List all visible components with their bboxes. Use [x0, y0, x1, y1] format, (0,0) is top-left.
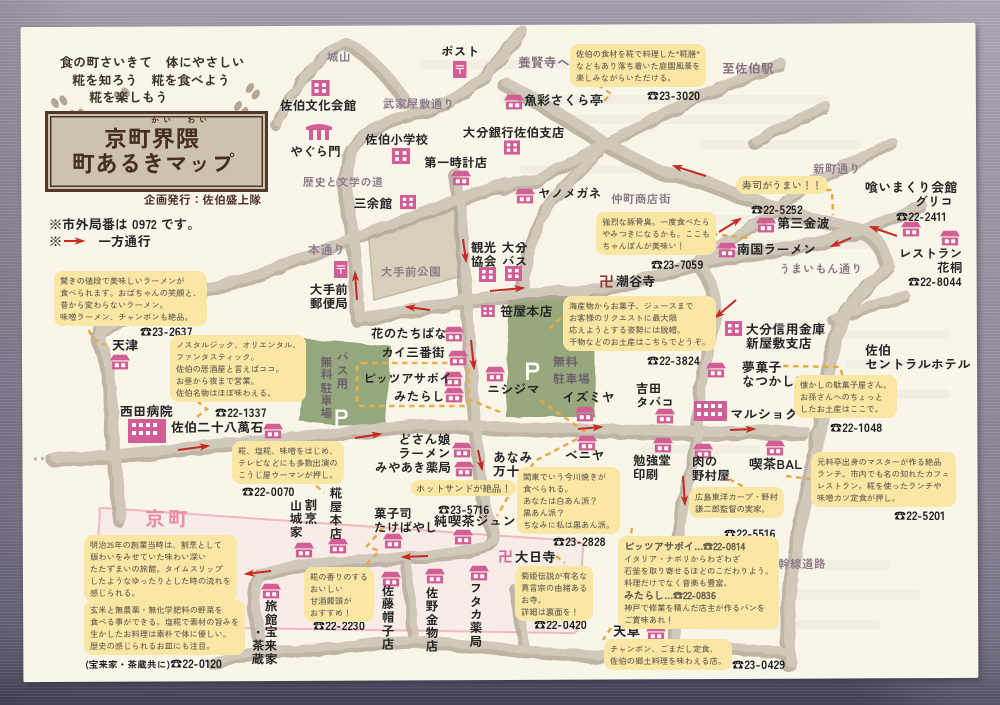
- svg-text:卍: 卍: [498, 546, 513, 567]
- svg-text:卍: 卍: [599, 271, 614, 292]
- svg-text:P: P: [334, 399, 349, 433]
